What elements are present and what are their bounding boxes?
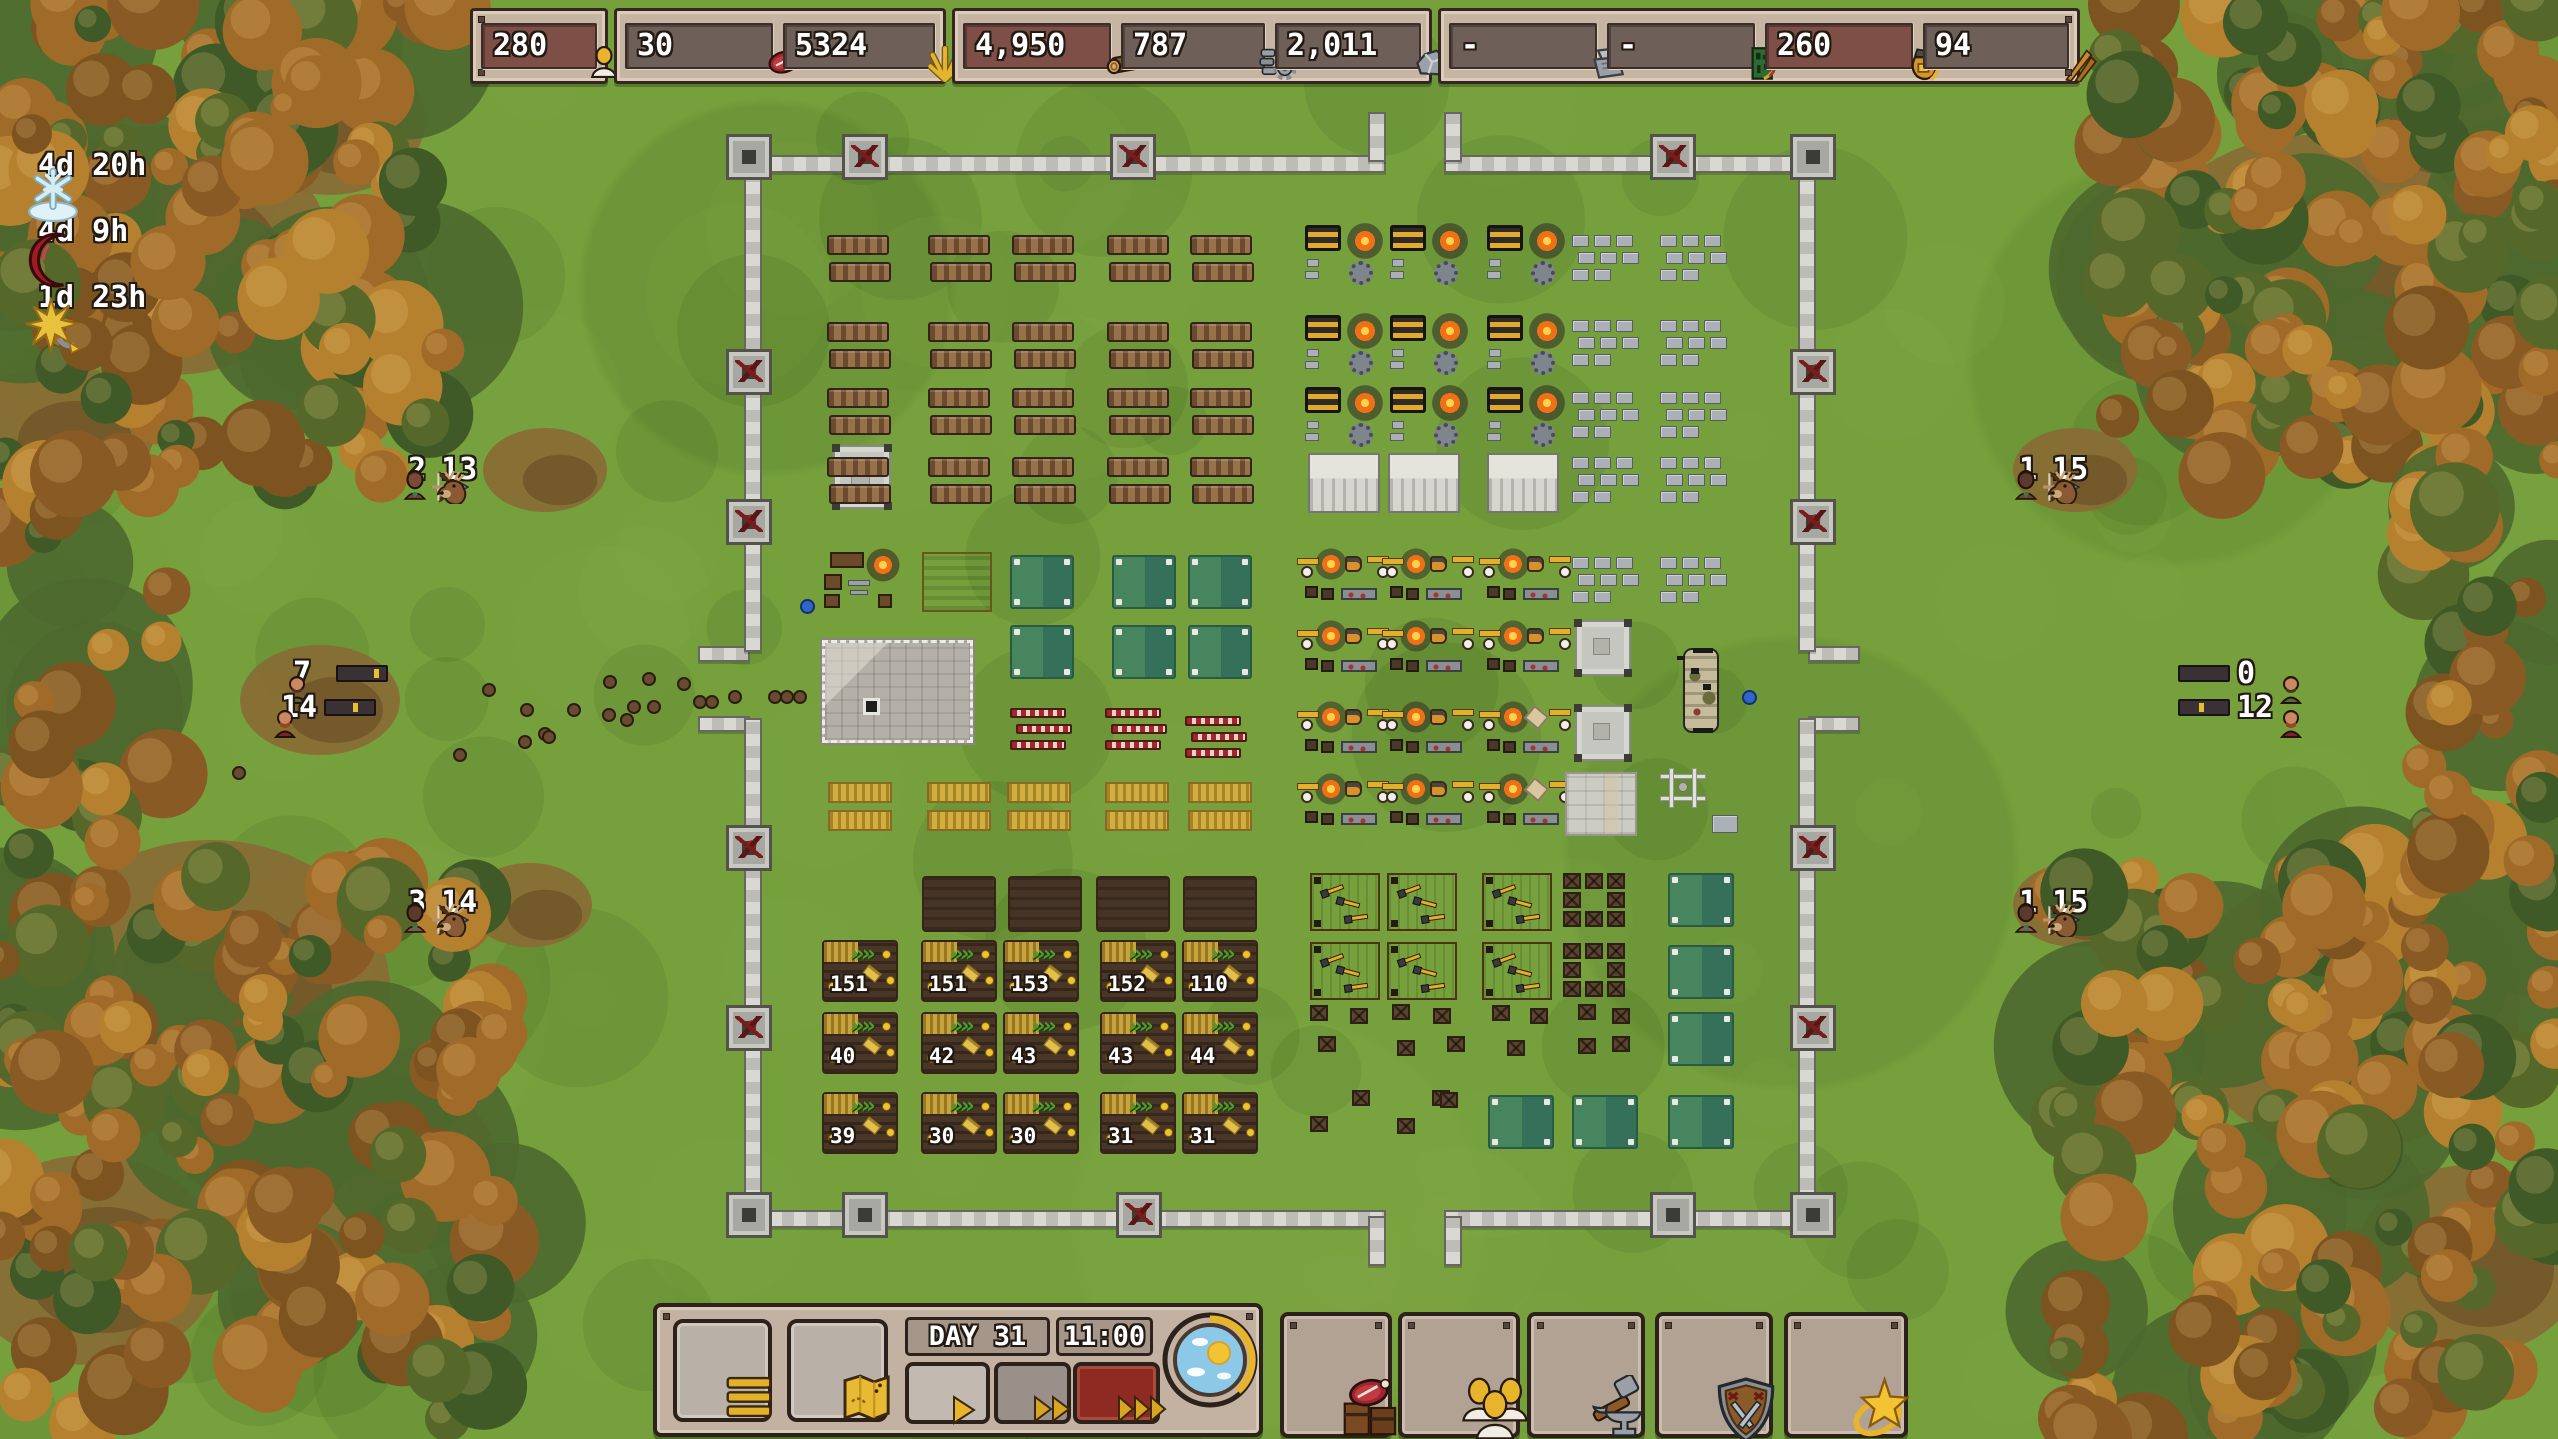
supply-crate[interactable] (1612, 1008, 1630, 1024)
workbench[interactable] (1310, 873, 1380, 931)
drying-rack[interactable] (1107, 457, 1169, 477)
smelter-station[interactable] (1487, 225, 1569, 289)
supply-crate[interactable] (1585, 873, 1603, 889)
canvas-tarp[interactable] (1488, 1095, 1554, 1149)
map-button[interactable] (787, 1319, 888, 1422)
campfire-station[interactable] (1487, 550, 1571, 608)
resource-stakes[interactable]: 94 (1923, 23, 2069, 69)
campfire-station[interactable] (1305, 703, 1389, 761)
resource-bar: 280 30 5324 4,950 787 2,0 (470, 8, 2080, 84)
wall-tower[interactable] (726, 134, 772, 180)
stone-brick (1682, 557, 1699, 569)
screw-icon (478, 69, 485, 76)
masonry-workshop[interactable] (1388, 453, 1460, 513)
smelter-station[interactable] (1305, 225, 1387, 289)
field-yield-count: 40 (830, 1046, 855, 1067)
meat-drying-rack[interactable] (1185, 716, 1241, 726)
bench-icon (1382, 558, 1404, 565)
canvas-tarp[interactable] (1668, 1095, 1734, 1149)
stone-stockpile[interactable] (1572, 235, 1636, 287)
masonry-workshop[interactable] (1308, 453, 1380, 513)
canvas-tarp[interactable] (1112, 555, 1176, 609)
tool-icon (1403, 953, 1422, 964)
campfire-station[interactable] (1390, 550, 1474, 608)
empty-plot[interactable] (1008, 876, 1082, 932)
drying-rack[interactable] (827, 322, 889, 342)
wall-segment (1444, 155, 1816, 173)
wheat-field[interactable]: »»40 (822, 1012, 898, 1074)
drying-rack[interactable] (930, 349, 992, 369)
wall-tower[interactable] (1790, 1192, 1836, 1238)
growth-arrows-icon: »» (1210, 944, 1233, 966)
post (832, 444, 840, 452)
drying-rack[interactable] (1192, 262, 1254, 282)
supply-crate[interactable] (1578, 1004, 1596, 1020)
stone-brick (1622, 474, 1639, 486)
supply-crate[interactable] (1563, 873, 1581, 889)
stone-stockpile[interactable] (1660, 392, 1724, 444)
supply-crate[interactable] (1350, 1008, 1368, 1024)
drying-rack[interactable] (1192, 349, 1254, 369)
wall-tower[interactable] (1790, 134, 1836, 180)
empty-plot[interactable] (1183, 876, 1257, 932)
hay-bundle-icon (862, 1036, 881, 1055)
supply-crate[interactable] (1397, 1040, 1415, 1056)
tool-icon (1350, 983, 1369, 990)
resource-stone[interactable]: 2,011 (1275, 23, 1421, 69)
gold-pouch-icon (1527, 628, 1544, 644)
drying-rack[interactable] (1109, 262, 1171, 282)
canvas-tarp[interactable] (1188, 555, 1252, 609)
stone-stockpile[interactable] (1572, 557, 1636, 609)
wall-tower[interactable] (726, 349, 772, 395)
drying-rack[interactable] (1190, 388, 1252, 408)
campfire-station[interactable] (1305, 550, 1389, 608)
wall-segment (744, 155, 762, 652)
workbench[interactable] (1482, 942, 1552, 1000)
wall-tower[interactable] (726, 499, 772, 545)
bench-icon (1549, 628, 1571, 635)
supply-crate[interactable] (1530, 1008, 1548, 1024)
wall-tower[interactable] (1790, 1005, 1836, 1051)
screw-icon (2065, 69, 2072, 76)
drying-rack[interactable] (1109, 415, 1171, 435)
canvas-tarp[interactable] (1188, 625, 1252, 679)
meat-drying-rack[interactable] (1010, 708, 1066, 718)
peg (1192, 669, 1198, 675)
workbench[interactable] (1387, 942, 1457, 1000)
supply-crate[interactable] (1607, 873, 1625, 889)
stone-bit (1307, 259, 1319, 267)
supply-crate[interactable] (1563, 943, 1581, 959)
drying-rack[interactable] (1107, 388, 1169, 408)
smelter-station[interactable] (1390, 225, 1472, 289)
drying-rack[interactable] (827, 457, 889, 477)
peg (1064, 629, 1070, 635)
resource-meat[interactable]: 30 (625, 23, 773, 69)
wall-tower[interactable] (1116, 1192, 1162, 1238)
supply-crate[interactable] (1352, 1090, 1370, 1106)
drying-rack[interactable] (1012, 457, 1074, 477)
smelter-station[interactable] (1305, 387, 1387, 451)
screw-icon (1628, 1322, 1635, 1329)
drying-rack[interactable] (1014, 415, 1076, 435)
straw-mat[interactable] (1007, 782, 1071, 803)
supply-crate[interactable] (1310, 1005, 1328, 1021)
coin-icon (985, 976, 994, 985)
plate-icon (1301, 791, 1313, 803)
abandoned-bus[interactable] (1683, 648, 1719, 733)
wall-tower[interactable] (726, 825, 772, 871)
wall-segment (744, 155, 1386, 173)
drying-rack[interactable] (829, 349, 891, 369)
resource-gold[interactable]: 260 (1765, 23, 1913, 69)
rally-point-marker[interactable] (800, 599, 815, 614)
drying-rack[interactable] (1192, 415, 1254, 435)
stone-brick (1704, 235, 1721, 247)
masonry-workshop[interactable] (1487, 453, 1559, 513)
tool-head (1320, 958, 1330, 968)
tool-head (1320, 889, 1330, 899)
supply-crate[interactable] (1607, 892, 1625, 908)
warehouse-building[interactable] (822, 640, 973, 743)
post (1574, 754, 1582, 762)
wall-tower[interactable] (1790, 349, 1836, 395)
resource-wood[interactable]: 4,950 (963, 23, 1111, 69)
stone-stockpile[interactable] (1660, 457, 1724, 509)
supply-crate[interactable] (1397, 1118, 1415, 1134)
canvas-tarp[interactable] (1668, 945, 1734, 999)
campfire-station[interactable] (1390, 775, 1474, 833)
population-button[interactable] (1398, 1312, 1520, 1438)
peg (1672, 877, 1678, 883)
speed-fast-button[interactable] (994, 1362, 1071, 1424)
wheat-field[interactable]: »»43 (1100, 1012, 1176, 1074)
meat-drying-rack[interactable] (1105, 740, 1161, 750)
corpse-icon (735, 510, 763, 532)
drying-rack[interactable] (1014, 349, 1076, 369)
resource-metal-plates[interactable]: - (1449, 23, 1597, 69)
stone-bit (1390, 271, 1404, 279)
straw-mat[interactable] (1105, 810, 1169, 831)
supply-crate[interactable] (1563, 981, 1581, 997)
stone-stockpile[interactable] (1572, 392, 1636, 444)
progress-tick (353, 703, 358, 712)
wheat-field[interactable]: »»151 (822, 940, 898, 1002)
drying-rack[interactable] (1192, 484, 1254, 504)
wheat-count: 5324 (795, 31, 867, 61)
stone-brick (1572, 269, 1589, 281)
food-stock-button[interactable] (1280, 1312, 1392, 1438)
supply-crate[interactable] (1607, 943, 1625, 959)
supply-crate[interactable] (1392, 1004, 1410, 1020)
wheat-field[interactable]: »»30 (1003, 1092, 1079, 1154)
stone-brick (1704, 557, 1721, 569)
wall-tower[interactable] (1790, 499, 1836, 545)
drying-rack[interactable] (1012, 322, 1074, 342)
furnace-fire-icon (1430, 311, 1470, 351)
drying-rack[interactable] (1014, 262, 1076, 282)
coin-icon (1246, 1128, 1255, 1137)
meat-count: 30 (637, 31, 673, 61)
defense-button[interactable] (1655, 1312, 1773, 1438)
main-toolbar: DAY 31 11:00 (653, 1303, 1263, 1437)
supply-crate[interactable] (1563, 892, 1581, 908)
meat-drying-rack[interactable] (1105, 708, 1161, 718)
plate-icon (1462, 638, 1474, 650)
tool-icon (1350, 914, 1369, 921)
canvas-tarp[interactable] (1572, 1095, 1638, 1149)
wheat-field[interactable]: »»31 (1182, 1092, 1258, 1154)
day-night-dial[interactable] (1162, 1312, 1258, 1408)
supply-crate[interactable] (1507, 1040, 1525, 1056)
straw-mat[interactable] (828, 782, 892, 803)
supply-crate[interactable] (1563, 911, 1581, 927)
wheat-field[interactable]: »»43 (1003, 1012, 1079, 1074)
canvas-tarp[interactable] (1668, 873, 1734, 927)
corpse-icon (1799, 510, 1827, 532)
resource-stone-bricks[interactable]: 787 (1121, 23, 1265, 69)
smelter-station[interactable] (1487, 387, 1569, 451)
supply-crate[interactable] (1492, 1005, 1510, 1021)
rally-point-marker[interactable] (1742, 690, 1757, 705)
supply-crate[interactable] (1607, 981, 1625, 997)
stone-stockpile[interactable] (1572, 320, 1636, 372)
wall-tower[interactable] (1790, 825, 1836, 871)
smelter-station[interactable] (1390, 387, 1472, 451)
crafting-button[interactable] (1527, 1312, 1645, 1438)
stone-foundation[interactable] (1575, 705, 1631, 761)
meat-drying-rack[interactable] (1010, 740, 1066, 750)
drying-rack[interactable] (1014, 484, 1076, 504)
wall-segment (1368, 1216, 1386, 1266)
wheat-field[interactable]: »»30 (921, 1092, 997, 1154)
peg (1724, 1056, 1730, 1062)
empty-plot[interactable] (922, 876, 996, 932)
coin-icon (882, 1102, 891, 1111)
wheat-field[interactable]: »»39 (822, 1092, 898, 1154)
stone-bit (1307, 421, 1319, 429)
drying-rack[interactable] (1190, 322, 1252, 342)
straw-mat[interactable] (1188, 782, 1252, 803)
stone-block[interactable] (1712, 815, 1738, 833)
wheat-field[interactable]: »»153 (1003, 940, 1079, 1002)
supply-crate[interactable] (1607, 911, 1625, 927)
hay-storage[interactable] (922, 552, 992, 612)
drying-rack[interactable] (829, 262, 891, 282)
resource-villagers[interactable]: 280 (481, 23, 597, 69)
crate-icon (1321, 588, 1334, 600)
stone-stockpile[interactable] (1660, 557, 1724, 609)
workbench[interactable] (1482, 873, 1552, 931)
machine-icon (1487, 387, 1523, 413)
meat-drying-rack[interactable] (1111, 724, 1167, 734)
campfire-station[interactable] (1487, 622, 1571, 680)
campfire-station[interactable] (1390, 703, 1474, 761)
beam (1660, 796, 1706, 801)
straw-mat[interactable] (1188, 810, 1252, 831)
rock-debris (780, 690, 794, 704)
stone-brick (1660, 491, 1677, 503)
post (1574, 704, 1582, 712)
peg (1064, 669, 1070, 675)
drying-rack[interactable] (829, 484, 891, 504)
drying-rack[interactable] (930, 415, 992, 435)
wheat-field[interactable]: »»42 (921, 1012, 997, 1074)
supply-crate[interactable] (1585, 911, 1603, 927)
stone-stockpile[interactable] (1660, 320, 1724, 372)
drying-rack[interactable] (928, 388, 990, 408)
wheat-field[interactable]: »»31 (1100, 1092, 1176, 1154)
straw-mat[interactable] (927, 782, 991, 803)
meat-drying-rack[interactable] (1191, 732, 1247, 742)
drying-rack[interactable] (928, 322, 990, 342)
drying-rack[interactable] (1012, 388, 1074, 408)
hay-bundle-icon (862, 1116, 881, 1135)
menu-button[interactable] (673, 1319, 772, 1422)
supply-crate[interactable] (1563, 962, 1581, 978)
drying-rack[interactable] (827, 235, 889, 255)
drying-rack[interactable] (1107, 322, 1169, 342)
speed-play-button[interactable] (905, 1362, 990, 1424)
stone-stockpile[interactable] (1660, 235, 1724, 287)
campfire-station[interactable] (1305, 622, 1389, 680)
growth-arrows-icon: »» (850, 944, 873, 966)
canvas-tarp[interactable] (1668, 1012, 1734, 1066)
drying-rack[interactable] (1109, 484, 1171, 504)
resource-wheat[interactable]: 5324 (783, 23, 935, 69)
concrete-slab-building[interactable] (1565, 772, 1637, 836)
wall-tower[interactable] (1650, 1192, 1696, 1238)
squad-count: 12 (2237, 690, 2273, 725)
drying-rack[interactable] (829, 415, 891, 435)
drying-rack[interactable] (928, 235, 990, 255)
supply-crate[interactable] (1578, 1038, 1596, 1054)
supply-crate[interactable] (1612, 1036, 1630, 1052)
wall-tower[interactable] (842, 134, 888, 180)
coin-icon (1063, 950, 1072, 959)
smelter-station[interactable] (1487, 315, 1569, 379)
drying-rack[interactable] (1190, 457, 1252, 477)
supply-crate[interactable] (1447, 1036, 1465, 1052)
smelter-station[interactable] (1390, 315, 1472, 379)
gear-icon (1434, 351, 1458, 375)
rock-debris (520, 703, 534, 717)
work-camp[interactable] (822, 550, 900, 616)
supply-crate[interactable] (1607, 962, 1625, 978)
stone-stockpile[interactable] (1572, 457, 1636, 509)
drying-rack[interactable] (1109, 349, 1171, 369)
campfire-station[interactable] (1487, 703, 1571, 761)
workbench[interactable] (1387, 873, 1457, 931)
growth-arrows-icon: »» (949, 1096, 972, 1118)
workbench[interactable] (1310, 942, 1380, 1000)
drying-rack[interactable] (1107, 235, 1169, 255)
crate-icon (824, 574, 842, 590)
game-viewport[interactable]: »»151»»151»»153»»152»»110»»40»»42»»43»»4… (0, 0, 2558, 1439)
wall-tower[interactable] (842, 1192, 888, 1238)
plate-icon (1559, 638, 1571, 650)
supply-crate[interactable] (1433, 1008, 1451, 1024)
campfire-station[interactable] (1487, 775, 1571, 833)
wall-tower[interactable] (726, 1192, 772, 1238)
supply-crate[interactable] (1585, 981, 1603, 997)
plate-icon (1462, 719, 1474, 731)
bench-icon (1297, 630, 1319, 637)
wall-tower[interactable] (726, 1005, 772, 1051)
speed-fastest-button[interactable] (1073, 1362, 1160, 1424)
supply-crate[interactable] (1440, 1092, 1458, 1108)
wheat-field[interactable]: »»151 (921, 940, 997, 1002)
machine-icon (1305, 315, 1341, 341)
drying-rack[interactable] (930, 262, 992, 282)
crate-icon (1390, 658, 1403, 670)
plate-icon (1386, 719, 1398, 731)
empty-plot[interactable] (1096, 876, 1170, 932)
campfire-station[interactable] (1390, 622, 1474, 680)
rock-debris (793, 690, 807, 704)
drying-rack[interactable] (1012, 235, 1074, 255)
stone-brick (1572, 591, 1589, 603)
resource-electronics[interactable]: - (1607, 23, 1755, 69)
scaffold-frame[interactable] (1660, 768, 1706, 808)
coin-icon (985, 1128, 994, 1137)
stone-brick (1578, 337, 1595, 349)
stone-brick (1594, 426, 1611, 438)
stone-brick (1594, 354, 1611, 366)
bench-icon (1479, 783, 1501, 790)
quest-button[interactable] (1784, 1312, 1908, 1438)
drying-rack[interactable] (928, 457, 990, 477)
hunting-party-left-bottom: 3 14 (403, 885, 477, 920)
growth-arrows-icon: »» (949, 1016, 972, 1038)
canvas-tarp[interactable] (1010, 625, 1074, 679)
gold-pouch-icon (1430, 709, 1447, 725)
wheat-field[interactable]: »»152 (1100, 940, 1176, 1002)
meat-drying-rack[interactable] (1016, 724, 1072, 734)
wall-tower[interactable] (1110, 134, 1156, 180)
canvas-tarp[interactable] (1010, 555, 1074, 609)
stone-bit (1487, 361, 1501, 369)
smelter-station[interactable] (1305, 315, 1387, 379)
supply-crate[interactable] (1585, 943, 1603, 959)
mirror (1677, 656, 1685, 660)
wall-tower[interactable] (1650, 134, 1696, 180)
stone-foundation[interactable] (1575, 620, 1631, 676)
peg (1116, 669, 1122, 675)
drying-rack[interactable] (930, 484, 992, 504)
machine-icon (1305, 387, 1341, 413)
hatch (1703, 684, 1711, 690)
straw-mat[interactable] (1105, 782, 1169, 803)
stone-brick (1660, 426, 1677, 438)
supply-crate[interactable] (1310, 1116, 1328, 1132)
wheat-field[interactable]: »»44 (1182, 1012, 1258, 1074)
squad-indicator-right-1: 0 (2178, 656, 2280, 691)
straw-mat[interactable] (927, 810, 991, 831)
drying-rack[interactable] (827, 388, 889, 408)
wheat-field[interactable]: »»110 (1182, 940, 1258, 1002)
straw-mat[interactable] (828, 810, 892, 831)
drying-rack[interactable] (1190, 235, 1252, 255)
straw-mat[interactable] (1007, 810, 1071, 831)
supply-crate[interactable] (1318, 1036, 1336, 1052)
peg (1672, 917, 1678, 923)
campfire-station[interactable] (1305, 775, 1389, 833)
meat-drying-rack[interactable] (1185, 748, 1241, 758)
plate-icon (1483, 791, 1495, 803)
canvas-tarp[interactable] (1112, 625, 1176, 679)
